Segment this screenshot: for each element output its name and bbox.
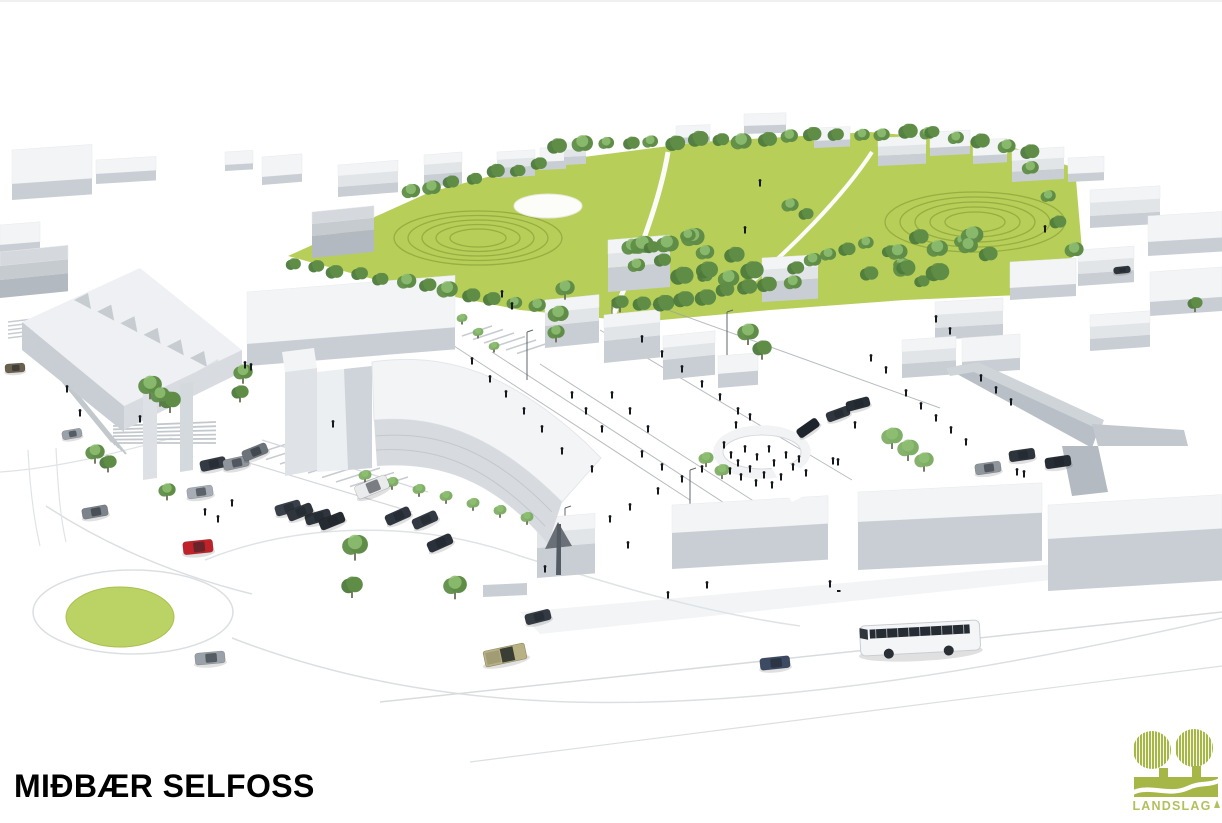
tree [757, 340, 768, 351]
person-body [805, 472, 807, 477]
person-body [798, 458, 800, 463]
tree [627, 137, 636, 146]
person-body [740, 476, 742, 481]
tree [858, 129, 867, 138]
person [661, 463, 664, 470]
person [719, 393, 722, 400]
tree [551, 325, 561, 335]
tree [877, 128, 886, 137]
tree [761, 277, 772, 288]
building [12, 144, 92, 200]
person-body [667, 594, 669, 599]
curved-archway-shadow [344, 366, 372, 470]
person [837, 458, 840, 465]
person-body [489, 378, 491, 383]
person-body [755, 482, 757, 487]
person-head [773, 459, 776, 462]
person [1010, 398, 1013, 405]
person [681, 365, 684, 372]
car [60, 428, 84, 443]
tree [658, 253, 668, 263]
person [854, 421, 857, 428]
tree [931, 263, 944, 276]
person-body [965, 441, 967, 446]
person [332, 420, 335, 427]
person-head [737, 407, 740, 410]
person-head [79, 409, 82, 412]
person-head [740, 473, 743, 476]
person-head [768, 445, 771, 448]
person [541, 425, 544, 432]
person-body [523, 410, 525, 415]
person-body [759, 182, 761, 187]
light-pole-arm-icon [527, 330, 533, 332]
tree [289, 258, 297, 266]
building [935, 298, 1003, 340]
tree [446, 175, 455, 184]
tree [702, 452, 710, 460]
person [523, 407, 526, 414]
person [244, 361, 247, 368]
tree [532, 299, 542, 309]
person [749, 465, 752, 472]
person-body [681, 368, 683, 373]
tree [238, 364, 249, 375]
roundabout-island [66, 587, 174, 647]
person-body [756, 456, 758, 461]
tree [162, 483, 172, 493]
tree [658, 295, 670, 307]
tree [155, 387, 166, 398]
person [792, 463, 795, 470]
roof [1010, 258, 1076, 288]
person-head [798, 455, 801, 458]
building [1148, 212, 1222, 256]
bus [857, 620, 983, 664]
person [629, 503, 632, 510]
building [1090, 311, 1150, 351]
tree [346, 577, 358, 589]
person-body [1023, 473, 1025, 478]
person-head [629, 503, 632, 506]
logo-mini-tree-icon [1214, 800, 1220, 808]
facade [1048, 529, 1222, 591]
car [973, 461, 1003, 479]
person-body [749, 468, 751, 473]
tree [576, 135, 588, 147]
car [1007, 448, 1037, 466]
tree [646, 135, 655, 144]
person [950, 426, 953, 433]
person [647, 425, 650, 432]
person-body [204, 511, 206, 516]
person-head [965, 438, 968, 441]
person [681, 475, 684, 482]
building [225, 150, 253, 171]
person-head [837, 458, 840, 461]
person-head [139, 415, 142, 418]
person-head [471, 357, 474, 360]
tree [1026, 161, 1036, 171]
person [756, 453, 759, 460]
person-head [641, 335, 644, 338]
person [905, 389, 908, 396]
person-head [681, 365, 684, 368]
person-body [79, 412, 81, 417]
person-head [217, 515, 220, 518]
tree [913, 229, 924, 240]
person-body [995, 389, 997, 394]
person [505, 390, 508, 397]
person [701, 380, 704, 387]
person-head [723, 441, 726, 444]
tree [718, 464, 726, 472]
person-head [792, 463, 795, 466]
person [870, 354, 873, 361]
paving-stripe [113, 439, 216, 440]
tree [632, 258, 642, 268]
dog [837, 590, 841, 592]
person-body [641, 338, 643, 343]
person-head [832, 457, 835, 460]
tree [951, 132, 960, 141]
person [706, 581, 709, 588]
tree [401, 274, 412, 285]
tree [735, 133, 747, 145]
person-body [681, 478, 683, 483]
person [217, 515, 220, 522]
person [641, 450, 644, 457]
gray-wing [946, 362, 1102, 448]
person-body [139, 418, 141, 423]
tree [423, 278, 433, 288]
building [1048, 495, 1222, 591]
car [410, 509, 442, 534]
person-head [561, 447, 564, 450]
tree [1024, 144, 1035, 155]
person-body [627, 544, 629, 549]
tree [785, 198, 795, 208]
person [768, 445, 771, 452]
gray-arm [1092, 424, 1188, 446]
person-head [805, 469, 808, 472]
tree [466, 288, 476, 298]
person-head [244, 361, 247, 364]
person-head [489, 375, 492, 378]
roof [1150, 267, 1222, 302]
person [661, 350, 664, 357]
tree [919, 452, 930, 463]
person-head [706, 581, 709, 584]
person-head [611, 391, 614, 394]
tree [802, 208, 810, 216]
tree [928, 126, 936, 134]
person-body [785, 454, 787, 459]
person-head [735, 421, 738, 424]
tree [496, 505, 503, 512]
person-head [609, 515, 612, 518]
car-window [196, 487, 207, 496]
logo-tree-icon [1175, 729, 1213, 767]
person [250, 363, 253, 370]
person [627, 541, 630, 548]
tree [355, 267, 364, 276]
person-head [627, 541, 630, 544]
tree [647, 241, 656, 250]
person-body [647, 428, 649, 433]
person-head [756, 453, 759, 456]
tree [784, 129, 794, 139]
car [80, 504, 111, 523]
facade [973, 154, 1007, 164]
tree [983, 247, 993, 257]
tree [388, 477, 395, 484]
light-pole-arm-icon [690, 468, 696, 470]
tree [700, 245, 710, 255]
person-body [768, 448, 770, 453]
person-head [701, 465, 704, 468]
building [672, 496, 828, 569]
person [561, 447, 564, 454]
person-body [735, 424, 737, 429]
person-body [737, 462, 739, 467]
person [785, 451, 788, 458]
person-head [661, 463, 664, 466]
person [730, 451, 733, 458]
person [805, 469, 808, 476]
tree [513, 165, 522, 174]
person-body [706, 584, 708, 589]
person-head [950, 426, 953, 429]
person-body [544, 568, 546, 573]
person [501, 290, 504, 297]
slide-top-edge [0, 0, 1222, 2]
tree [1191, 297, 1199, 305]
car-window [1054, 457, 1065, 466]
road-edge [46, 506, 252, 594]
tree [448, 576, 461, 589]
retaining-wall [180, 382, 193, 472]
person-head [629, 407, 632, 410]
tree [791, 261, 801, 271]
person-head [641, 450, 644, 453]
bus-windshield [859, 628, 868, 640]
tree [900, 260, 910, 270]
person-body [629, 410, 631, 415]
tree [426, 180, 436, 190]
light-pole-arm-icon [565, 506, 571, 508]
tree [723, 270, 735, 282]
person [759, 179, 762, 186]
person [935, 414, 938, 421]
person [204, 508, 207, 515]
person-body [611, 394, 613, 399]
tree [90, 444, 101, 455]
tree [692, 131, 704, 143]
low-wall [483, 583, 527, 597]
page-title: MIÐBÆR SELFOSS [14, 768, 315, 805]
paving-stripe [113, 430, 216, 432]
tree [745, 261, 758, 274]
person-head [681, 475, 684, 478]
person-head [66, 385, 69, 388]
tree [678, 291, 690, 303]
building [878, 136, 926, 166]
road-edge [56, 448, 66, 542]
tree [966, 226, 979, 239]
person [965, 438, 968, 445]
gray-leg [1062, 446, 1108, 496]
person-head [505, 390, 508, 393]
roof [0, 222, 40, 245]
road-edge [232, 618, 1222, 703]
person-head [749, 413, 752, 416]
tree [406, 184, 416, 194]
person-head [601, 425, 604, 428]
logo-tree-icon [1133, 731, 1171, 769]
tree [807, 127, 817, 137]
tree [469, 498, 476, 505]
person [723, 441, 726, 448]
person [735, 421, 738, 428]
person-head [667, 591, 670, 594]
tree [459, 314, 465, 320]
tree [670, 136, 681, 147]
person-body [571, 394, 573, 399]
roof [12, 144, 92, 184]
person-body [780, 476, 782, 481]
person [1016, 468, 1019, 475]
roof [1068, 156, 1104, 174]
person-head [1023, 470, 1026, 473]
person-head [763, 471, 766, 474]
roof [718, 353, 758, 374]
tree [742, 324, 754, 336]
person-head [744, 226, 747, 229]
car [181, 539, 216, 559]
tree [931, 240, 943, 252]
person [139, 415, 142, 422]
person-body [231, 502, 233, 507]
tree [661, 235, 673, 247]
person-head [780, 473, 783, 476]
person-body [719, 396, 721, 401]
building [0, 245, 68, 298]
rendering-selfoss-aerial: LANDSLAG [0, 0, 1222, 823]
person-head [661, 350, 664, 353]
person-head [980, 374, 983, 377]
car-window [1119, 268, 1126, 273]
person-body [501, 293, 503, 298]
person-body [1044, 228, 1046, 233]
person-body [471, 360, 473, 365]
tree [716, 133, 725, 142]
tree [1053, 215, 1062, 224]
person-body [905, 392, 907, 397]
building [604, 309, 660, 363]
tree [892, 244, 903, 255]
road-edge [28, 450, 40, 546]
tree [831, 128, 840, 137]
person-head [755, 479, 758, 482]
person [79, 409, 82, 416]
tree [903, 124, 914, 135]
person-head [1044, 225, 1047, 228]
person [657, 487, 660, 494]
tree [491, 164, 501, 174]
person-body [730, 454, 732, 459]
person-body [920, 405, 922, 410]
person-head [749, 465, 752, 468]
tree [861, 237, 870, 246]
tree [864, 266, 874, 276]
tree [491, 342, 497, 348]
tree [699, 289, 711, 301]
person-head [905, 389, 908, 392]
person-body [837, 461, 839, 466]
tree [523, 512, 530, 519]
person [885, 366, 888, 373]
facade [814, 140, 850, 148]
person [829, 580, 832, 587]
person-body [66, 388, 68, 393]
tree [487, 292, 497, 302]
person-body [701, 383, 703, 388]
tree [475, 328, 481, 334]
person-head [1016, 468, 1019, 471]
logo-wordmark: LANDSLAG [1132, 799, 1211, 813]
person-body [854, 424, 856, 429]
tree [808, 253, 818, 263]
person [629, 407, 632, 414]
person [231, 499, 234, 506]
person-body [661, 466, 663, 471]
person-head [647, 425, 650, 428]
tree [470, 173, 479, 182]
tree [1002, 139, 1012, 149]
car [4, 363, 27, 376]
person [471, 357, 474, 364]
car-window [770, 658, 782, 668]
car-window [205, 653, 217, 663]
person-head [995, 386, 998, 389]
person-body [949, 330, 951, 335]
tree [975, 133, 986, 144]
building [262, 154, 302, 185]
tree [235, 385, 245, 395]
person-head [544, 565, 547, 568]
person [832, 457, 835, 464]
person-head [585, 407, 588, 410]
person-body [585, 410, 587, 415]
person-body [885, 369, 887, 374]
person-body [657, 490, 659, 495]
person [1044, 225, 1047, 232]
building [1068, 156, 1104, 182]
person-body [763, 474, 765, 479]
person-head [759, 179, 762, 182]
tree [886, 428, 898, 440]
curved-pillar-top [282, 348, 317, 372]
tree [824, 248, 833, 257]
person-body [935, 318, 937, 323]
car-window [984, 463, 995, 472]
car-window [1018, 450, 1029, 459]
person [585, 407, 588, 414]
person [66, 385, 69, 392]
car [185, 485, 215, 503]
tree [1069, 242, 1080, 253]
